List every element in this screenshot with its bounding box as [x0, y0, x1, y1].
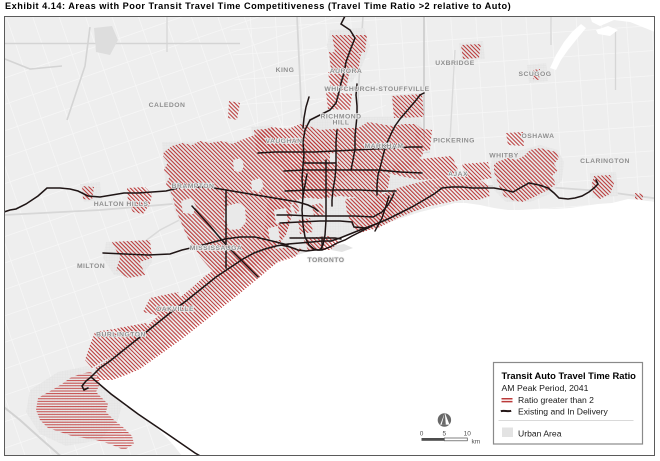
svg-text:CLARINGTON: CLARINGTON [580, 158, 630, 165]
svg-text:CALEDON: CALEDON [149, 102, 186, 109]
svg-text:0: 0 [420, 431, 424, 438]
svg-text:WHITCHURCH-STOUFFVILLE: WHITCHURCH-STOUFFVILLE [324, 86, 429, 93]
svg-text:HALTON HILLS: HALTON HILLS [94, 201, 149, 208]
svg-text:UXBRIDGE: UXBRIDGE [435, 60, 474, 67]
svg-text:10: 10 [464, 431, 472, 438]
svg-text:OSHAWA: OSHAWA [522, 133, 555, 140]
svg-text:MILTON: MILTON [77, 263, 105, 270]
svg-text:MISSISSAUGA: MISSISSAUGA [190, 245, 243, 252]
svg-text:HILL: HILL [333, 120, 350, 127]
svg-text:BURLINGTON: BURLINGTON [96, 332, 146, 339]
svg-text:km: km [472, 439, 481, 446]
svg-text:OAKVILLE: OAKVILLE [156, 306, 194, 313]
svg-text:Transit Auto Travel Time Ratio: Transit Auto Travel Time Ratio [502, 370, 637, 381]
svg-text:Existing and In Delivery: Existing and In Delivery [518, 406, 609, 416]
svg-text:TORONTO: TORONTO [308, 257, 345, 264]
svg-text:MARKHAM: MARKHAM [364, 143, 403, 150]
svg-text:Ratio greater than 2: Ratio greater than 2 [518, 395, 594, 405]
svg-text:VAUGHAN: VAUGHAN [265, 138, 302, 145]
svg-text:AM Peak Period, 2041: AM Peak Period, 2041 [502, 383, 589, 393]
svg-text:AURORA: AURORA [330, 68, 363, 75]
svg-text:KING: KING [276, 67, 295, 74]
svg-text:BRAMPTON: BRAMPTON [172, 183, 215, 190]
svg-text:Urban Area: Urban Area [518, 428, 562, 438]
svg-text:AJAX: AJAX [448, 171, 468, 178]
svg-text:SCUGOG: SCUGOG [519, 71, 552, 78]
svg-text:PICKERING: PICKERING [433, 138, 475, 145]
svg-text:5: 5 [442, 431, 446, 438]
svg-text:WHITBY: WHITBY [489, 153, 519, 160]
